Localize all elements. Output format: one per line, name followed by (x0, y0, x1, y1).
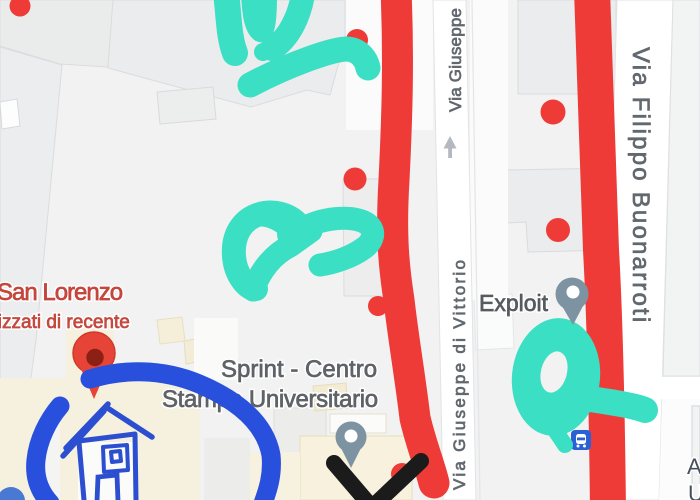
svg-text:Via Giuseppe: Via Giuseppe (446, 8, 465, 112)
svg-text:Via Filippo Buonarroti: Via Filippo Buonarroti (627, 47, 654, 324)
svg-text:U: U (688, 481, 700, 500)
svg-text:Via Giuseppe di Vittorio: Via Giuseppe di Vittorio (450, 258, 469, 490)
svg-text:San Lorenzo: San Lorenzo (0, 279, 123, 306)
svg-text:Sprint - Centro: Sprint - Centro (221, 356, 377, 383)
svg-text:alizzati di recente: alizzati di recente (0, 312, 130, 333)
svg-text:A: A (687, 454, 700, 479)
svg-text:Exploit: Exploit (479, 290, 549, 316)
